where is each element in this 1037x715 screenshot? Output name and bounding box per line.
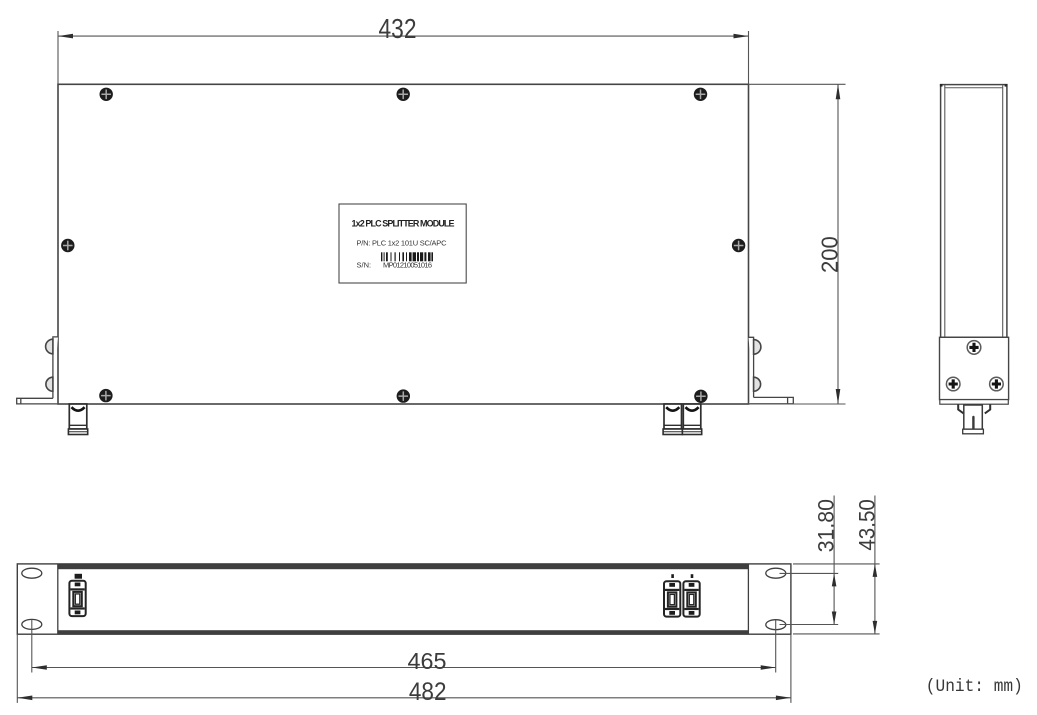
svg-text:S/N:: S/N: [357, 261, 372, 270]
svg-text:MP01210051016: MP01210051016 [383, 261, 432, 270]
svg-text:31.80: 31.80 [814, 499, 839, 552]
svg-text:P/N: PLC 1x2 101U SC/APC: P/N: PLC 1x2 101U SC/APC [357, 239, 448, 248]
svg-text:(Unit: mm): (Unit: mm) [926, 677, 1023, 697]
svg-text:465: 465 [408, 648, 447, 674]
svg-text:43.50: 43.50 [855, 499, 880, 551]
svg-text:482: 482 [409, 678, 447, 706]
svg-text:200: 200 [817, 236, 843, 273]
svg-text:1x2 PLC SPLITTER MODULE: 1x2 PLC SPLITTER MODULE [352, 219, 455, 229]
svg-text:432: 432 [379, 13, 417, 44]
